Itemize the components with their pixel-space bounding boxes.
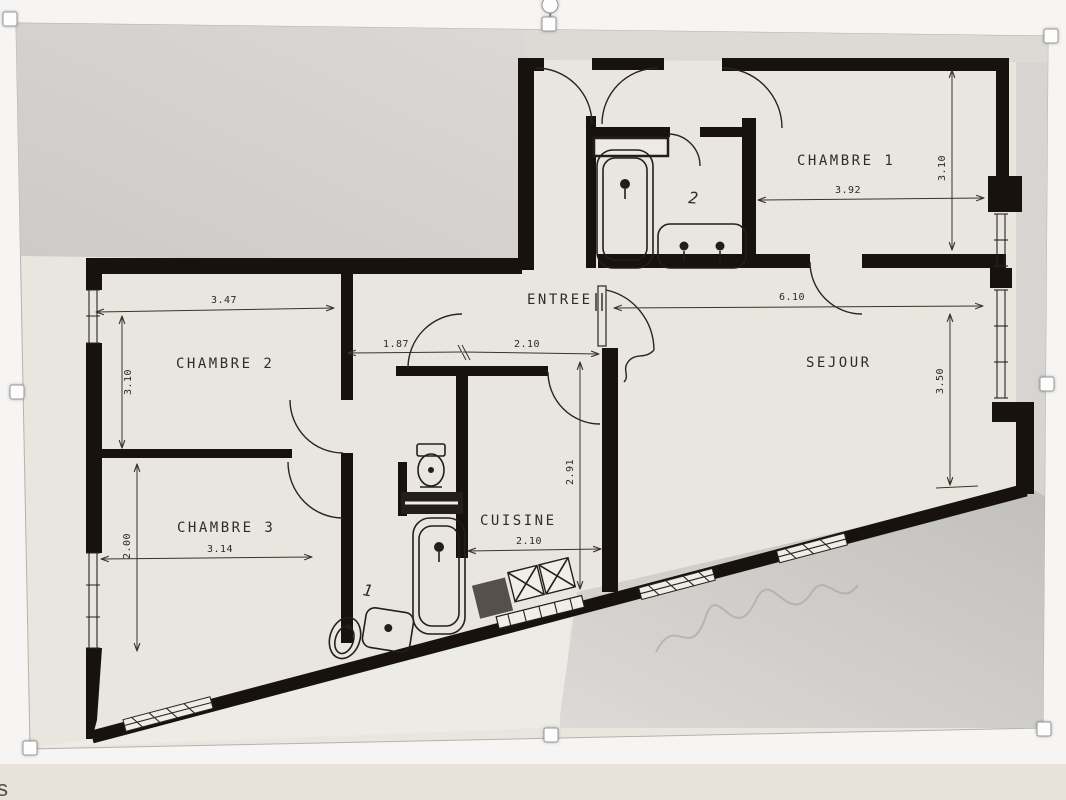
bath2-shelf (594, 138, 668, 156)
label-chambre1: CHAMBRE 1 (797, 153, 895, 169)
selection-handle-bottom-right[interactable] (1037, 722, 1052, 737)
dim-chambre2-depth: 3.10 (123, 369, 134, 395)
selection-handle-bottom-left[interactable] (23, 741, 38, 756)
cropped-text: s (0, 776, 8, 800)
selection-handle-top-center[interactable] (542, 17, 557, 32)
selection-handle-middle-left[interactable] (10, 385, 25, 400)
dim-cuisine-depth: 2.91 (565, 459, 576, 485)
bottom-strip (0, 764, 1066, 800)
dim-chambre3-depth: 2.00 (122, 533, 133, 559)
bath1-shelf (401, 492, 463, 514)
label-entree: ENTREE (527, 292, 593, 308)
editor-canvas: 3.92 3.10 3.47 3.10 1.87 2.10 6.10 3.50 … (0, 0, 1066, 800)
selection-handle-middle-right[interactable] (1040, 377, 1055, 392)
label-cuisine: CUISINE (480, 513, 557, 529)
label-sejour: SEJOUR (806, 355, 872, 371)
selection-handle-bottom-center[interactable] (544, 728, 559, 743)
dim-sejour-width: 6.10 (779, 292, 805, 303)
dim-chambre1-width: 3.92 (835, 185, 861, 196)
dim-chambre3-width: 3.14 (207, 544, 233, 555)
label-chambre2: CHAMBRE 2 (176, 356, 274, 372)
selection-handle-top-left[interactable] (3, 12, 18, 27)
floorplan-photo-svg: 3.92 3.10 3.47 3.10 1.87 2.10 6.10 3.50 … (0, 0, 1066, 800)
dim-chambre2-width: 3.47 (211, 295, 237, 306)
label-bathroom-2: 2 (688, 188, 699, 208)
dim-sejour-depth: 3.50 (935, 368, 946, 394)
dim-entree-left: 1.87 (383, 339, 409, 350)
label-chambre3: CHAMBRE 3 (177, 520, 275, 536)
selection-handle-top-right[interactable] (1044, 29, 1059, 44)
dim-chambre1-depth: 3.10 (937, 155, 948, 181)
dim-entree-right: 2.10 (514, 339, 540, 350)
dim-cuisine-width: 2.10 (516, 536, 542, 547)
